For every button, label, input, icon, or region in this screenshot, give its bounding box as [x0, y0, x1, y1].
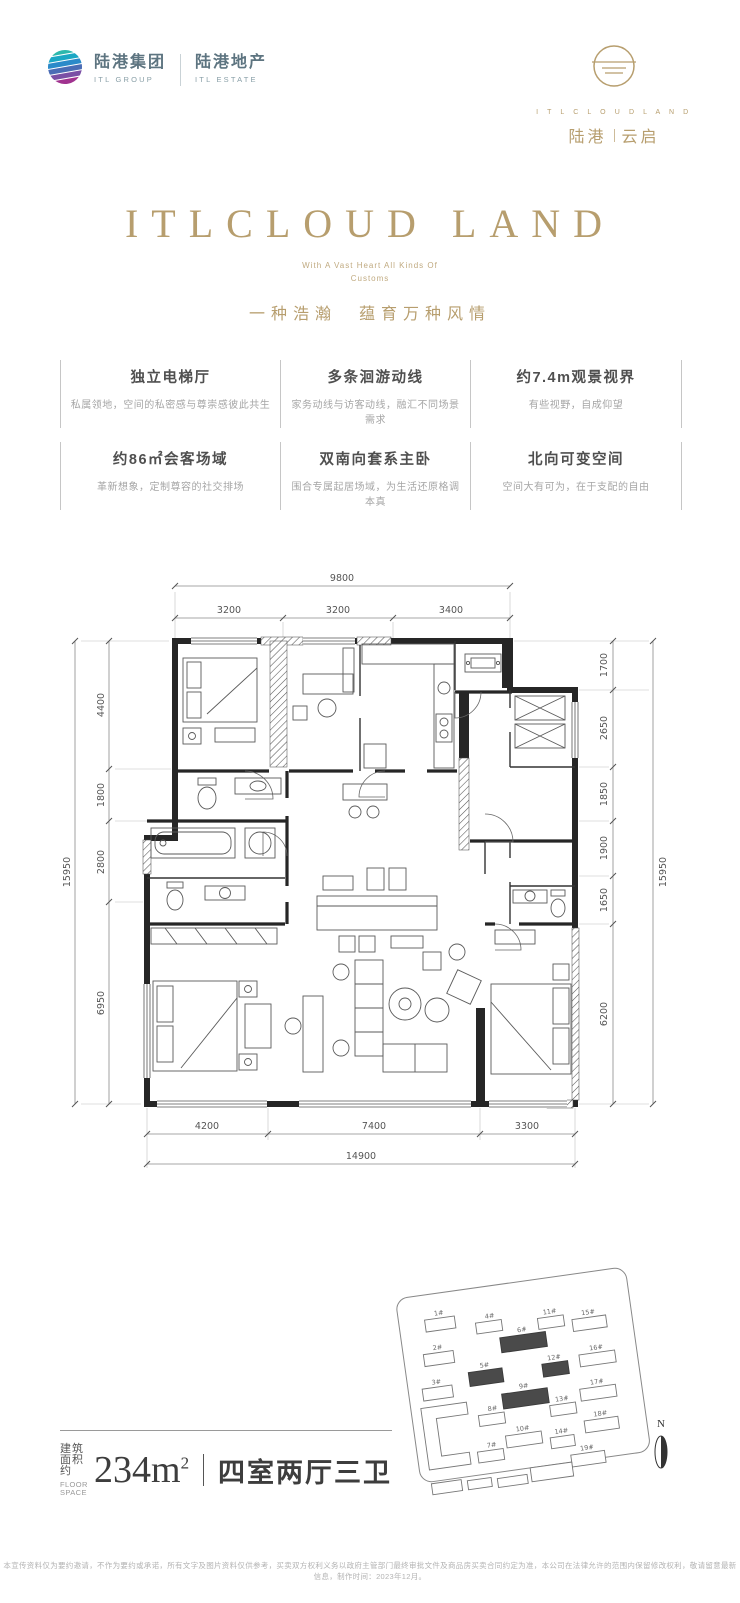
svg-text:15#: 15#: [581, 1307, 596, 1317]
feature-title: 多条洄游动线: [287, 366, 464, 387]
area-label-cn: 建筑面积约: [60, 1444, 88, 1477]
hero-subtitle: With A Vast Heart All Kinds Of Customs: [0, 260, 740, 286]
project-cn-separator: [614, 129, 615, 142]
svg-text:11#: 11#: [542, 1307, 557, 1317]
building-1: 1#: [423, 1307, 456, 1332]
group-name-en: ITL GROUP: [94, 76, 166, 84]
building-11: 11#: [536, 1306, 565, 1329]
building-10: 10#: [504, 1422, 543, 1448]
svg-text:19#: 19#: [580, 1443, 595, 1453]
bathroom-a: [198, 778, 281, 809]
bedroom-right: [491, 930, 571, 1074]
dim-right-4: 1900: [599, 836, 610, 860]
feature-elevator-hall: 独立电梯厅 私属领地，空间的私密感与尊崇感彼此共生: [60, 360, 280, 428]
poster-page: 陆港集团 ITL GROUP 陆港地产 ITL ESTATE I T L C L…: [0, 0, 740, 1603]
project-logo: I T L C L O U D L A N D 陆港 云启: [534, 42, 694, 147]
area-label-en: FLOOR SPACE: [60, 1481, 88, 1496]
dim-right-total: 15950: [658, 857, 669, 887]
bed-top-left: [183, 658, 257, 744]
dim-right-6: 6200: [599, 1002, 610, 1026]
feature-title: 北向可变空间: [477, 448, 675, 469]
compass: N: [645, 1418, 677, 1479]
estate-name-en: ITL ESTATE: [195, 76, 267, 84]
dimension-lines: [72, 583, 656, 1167]
dim-right-5: 1650: [599, 888, 610, 912]
svg-text:18#: 18#: [593, 1409, 608, 1419]
dim-top-3: 3400: [439, 605, 463, 616]
svg-text:16#: 16#: [589, 1343, 604, 1353]
svg-text:1#: 1#: [433, 1309, 444, 1318]
building-15: 15#: [571, 1306, 608, 1332]
bedroom-left: [151, 928, 277, 1071]
svg-text:4#: 4#: [484, 1311, 495, 1320]
dim-right-3: 1850: [599, 782, 610, 806]
building-18: 18#: [583, 1407, 620, 1433]
estate-name-cn: 陆港地产: [195, 55, 267, 71]
page-title: ITLCLOUD LAND: [0, 200, 740, 247]
extension-lines: [81, 592, 649, 1168]
siteplan-group: 1# 2# 3# 4# 5# 6# 7# 8# 9# 10# 11# 12# 1…: [395, 1267, 653, 1498]
svg-text:12#: 12#: [547, 1353, 562, 1363]
area-number: 234m: [94, 1449, 181, 1491]
feature-desc: 革新想象，定制尊容的社交排场: [67, 478, 274, 493]
building-3: 3#: [421, 1376, 454, 1401]
project-name-en: I T L C L O U D L A N D: [534, 109, 694, 116]
building-14: 14#: [549, 1426, 576, 1449]
hero-slogan: 一种浩瀚 蕴育万种风情: [0, 300, 740, 324]
feature-master-suite: 双南向套系主卧 围合专属起居场域，为生活还原格调本真: [280, 442, 470, 510]
windows: [142, 636, 579, 1108]
unit-layout: 四室两厅三卫: [218, 1451, 392, 1490]
feature-desc: 私属领地，空间的私密感与尊崇感彼此共生: [67, 396, 274, 411]
feature-view: 约7.4m观景视界 有些视野，自成仰望: [470, 360, 682, 428]
area-label: 建筑面积约 FLOOR SPACE: [60, 1444, 88, 1496]
svg-text:3#: 3#: [431, 1378, 442, 1387]
disclaimer-text: 本宣传资料仅为要约邀请，不作为要约或承诺，所有文字及图片资料仅供参考，买卖双方权…: [0, 1560, 740, 1582]
feature-desc: 空间大有可为，在于支配的自由: [477, 478, 675, 493]
hatched-walls: [143, 637, 579, 1108]
elevator-hall-bench: [465, 654, 501, 672]
hero-section: ITLCLOUD LAND With A Vast Heart All Kind…: [0, 200, 740, 324]
svg-text:2#: 2#: [432, 1343, 443, 1352]
feature-title: 约86㎡会客场域: [67, 448, 274, 469]
project-name-cn: 陆港 云启: [534, 123, 694, 147]
feature-desc: 围合专属起居场域，为生活还原格调本真: [287, 478, 464, 508]
dim-right-2: 2650: [599, 716, 610, 740]
dim-bottom-total: 14900: [346, 1151, 376, 1162]
building-7: 7#: [476, 1440, 505, 1463]
project-cn-right: 云启: [622, 123, 660, 147]
feature-title: 约7.4m观景视界: [477, 366, 675, 387]
living-set: [285, 944, 481, 1072]
siteplan-drawing: 1# 2# 3# 4# 5# 6# 7# 8# 9# 10# 11# 12# 1…: [393, 1246, 653, 1503]
dim-bottom-1: 4200: [195, 1121, 219, 1132]
feature-desc: 家务动线与访客动线，融汇不同场景需求: [287, 396, 464, 426]
hero-subtitle-line1: With A Vast Heart All Kinds Of: [0, 260, 740, 273]
furniture: [151, 644, 571, 1074]
dining-set: [317, 784, 437, 952]
storage-closet: [515, 696, 565, 748]
group-wordmark: 陆港集团 ITL GROUP: [94, 55, 166, 84]
dim-left-4: 6950: [96, 991, 107, 1015]
building-16: 16#: [578, 1341, 617, 1367]
itl-group-logo: 陆港集团 ITL GROUP 陆港地产 ITL ESTATE: [46, 46, 267, 93]
dim-left-3: 2800: [96, 850, 107, 874]
building-9: 9#: [500, 1379, 549, 1409]
svg-text:17#: 17#: [589, 1377, 604, 1387]
bathroom-c: [513, 890, 565, 917]
building-13: 13#: [548, 1393, 577, 1416]
building-2: 2#: [422, 1342, 455, 1367]
project-cn-left: 陆港: [568, 123, 606, 147]
dim-bottom-3: 3300: [515, 1121, 539, 1132]
compass-north-label: N: [645, 1418, 677, 1430]
study-desk: [293, 648, 354, 720]
globe-icon: [46, 46, 86, 93]
dim-left-1: 4400: [96, 693, 107, 717]
logo-divider: [180, 54, 181, 86]
svg-text:13#: 13#: [554, 1394, 569, 1404]
podium-building: [421, 1402, 475, 1470]
building-8: 8#: [477, 1403, 506, 1426]
feature-desc: 有些视野，自成仰望: [477, 396, 675, 411]
svg-text:6#: 6#: [517, 1325, 528, 1334]
dim-bottom-2: 7400: [362, 1121, 386, 1132]
area-summary: 建筑面积约 FLOOR SPACE 234m2 四室两厅三卫: [60, 1430, 392, 1496]
building-17: 17#: [578, 1375, 617, 1401]
dim-left-total: 15950: [62, 857, 73, 887]
svg-text:14#: 14#: [554, 1426, 569, 1436]
estate-wordmark: 陆港地产 ITL ESTATE: [195, 55, 267, 84]
area-value: 234m2: [94, 1451, 189, 1489]
dim-right-1: 1700: [599, 653, 610, 677]
dim-left-2: 1800: [96, 783, 107, 807]
svg-text:10#: 10#: [515, 1424, 530, 1434]
feature-title: 独立电梯厅: [67, 366, 274, 387]
building-12: 12#: [541, 1352, 570, 1377]
cloud-circle-icon: [589, 79, 639, 96]
dim-top-1: 3200: [217, 605, 241, 616]
building-4: 4#: [474, 1311, 503, 1334]
dim-top-total: 9800: [330, 573, 354, 584]
svg-text:8#: 8#: [487, 1404, 498, 1413]
group-name-cn: 陆港集团: [94, 55, 166, 71]
floorplan-drawing: 9800 3200 3200 3400 15950 4400 1800 2800…: [55, 556, 690, 1206]
feature-title: 双南向套系主卧: [287, 448, 464, 469]
svg-text:9#: 9#: [518, 1381, 529, 1390]
dim-top-2: 3200: [326, 605, 350, 616]
svg-text:7#: 7#: [486, 1440, 497, 1449]
building-5: 5#: [467, 1359, 504, 1387]
area-superscript: 2: [181, 1453, 190, 1472]
feature-living-area: 约86㎡会客场域 革新想象，定制尊容的社交排场: [60, 442, 280, 510]
svg-text:5#: 5#: [479, 1361, 490, 1370]
feature-flex-space: 北向可变空间 空间大有可为，在于支配的自由: [470, 442, 682, 510]
summary-divider: [203, 1454, 204, 1486]
feature-grid: 独立电梯厅 私属领地，空间的私密感与尊崇感彼此共生 多条洄游动线 家务动线与访客…: [60, 360, 682, 510]
hero-subtitle-line2: Customs: [0, 273, 740, 286]
kitchen: [362, 644, 454, 768]
compass-needle-icon: [645, 1430, 677, 1474]
feature-circulation: 多条洄游动线 家务动线与访客动线，融汇不同场景需求: [280, 360, 470, 428]
